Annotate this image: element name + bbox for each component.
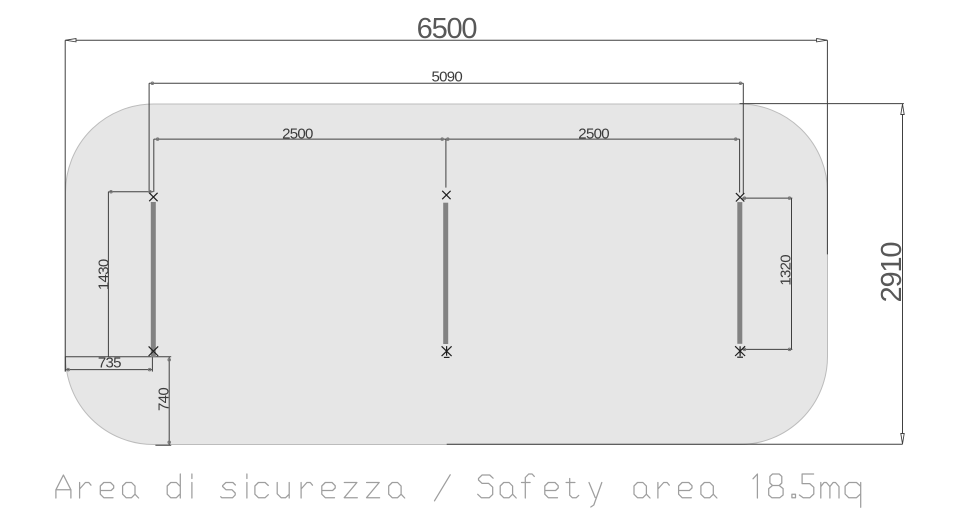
svg-text:6500: 6500	[417, 13, 477, 45]
svg-text:2500: 2500	[578, 126, 609, 143]
svg-text:5090: 5090	[432, 69, 463, 86]
svg-text:735: 735	[98, 355, 121, 372]
svg-text:2500: 2500	[282, 126, 313, 143]
svg-text:2910: 2910	[876, 243, 908, 303]
svg-text:1320: 1320	[777, 255, 794, 286]
svg-text:740: 740	[156, 388, 173, 411]
svg-text:1430: 1430	[96, 259, 113, 290]
